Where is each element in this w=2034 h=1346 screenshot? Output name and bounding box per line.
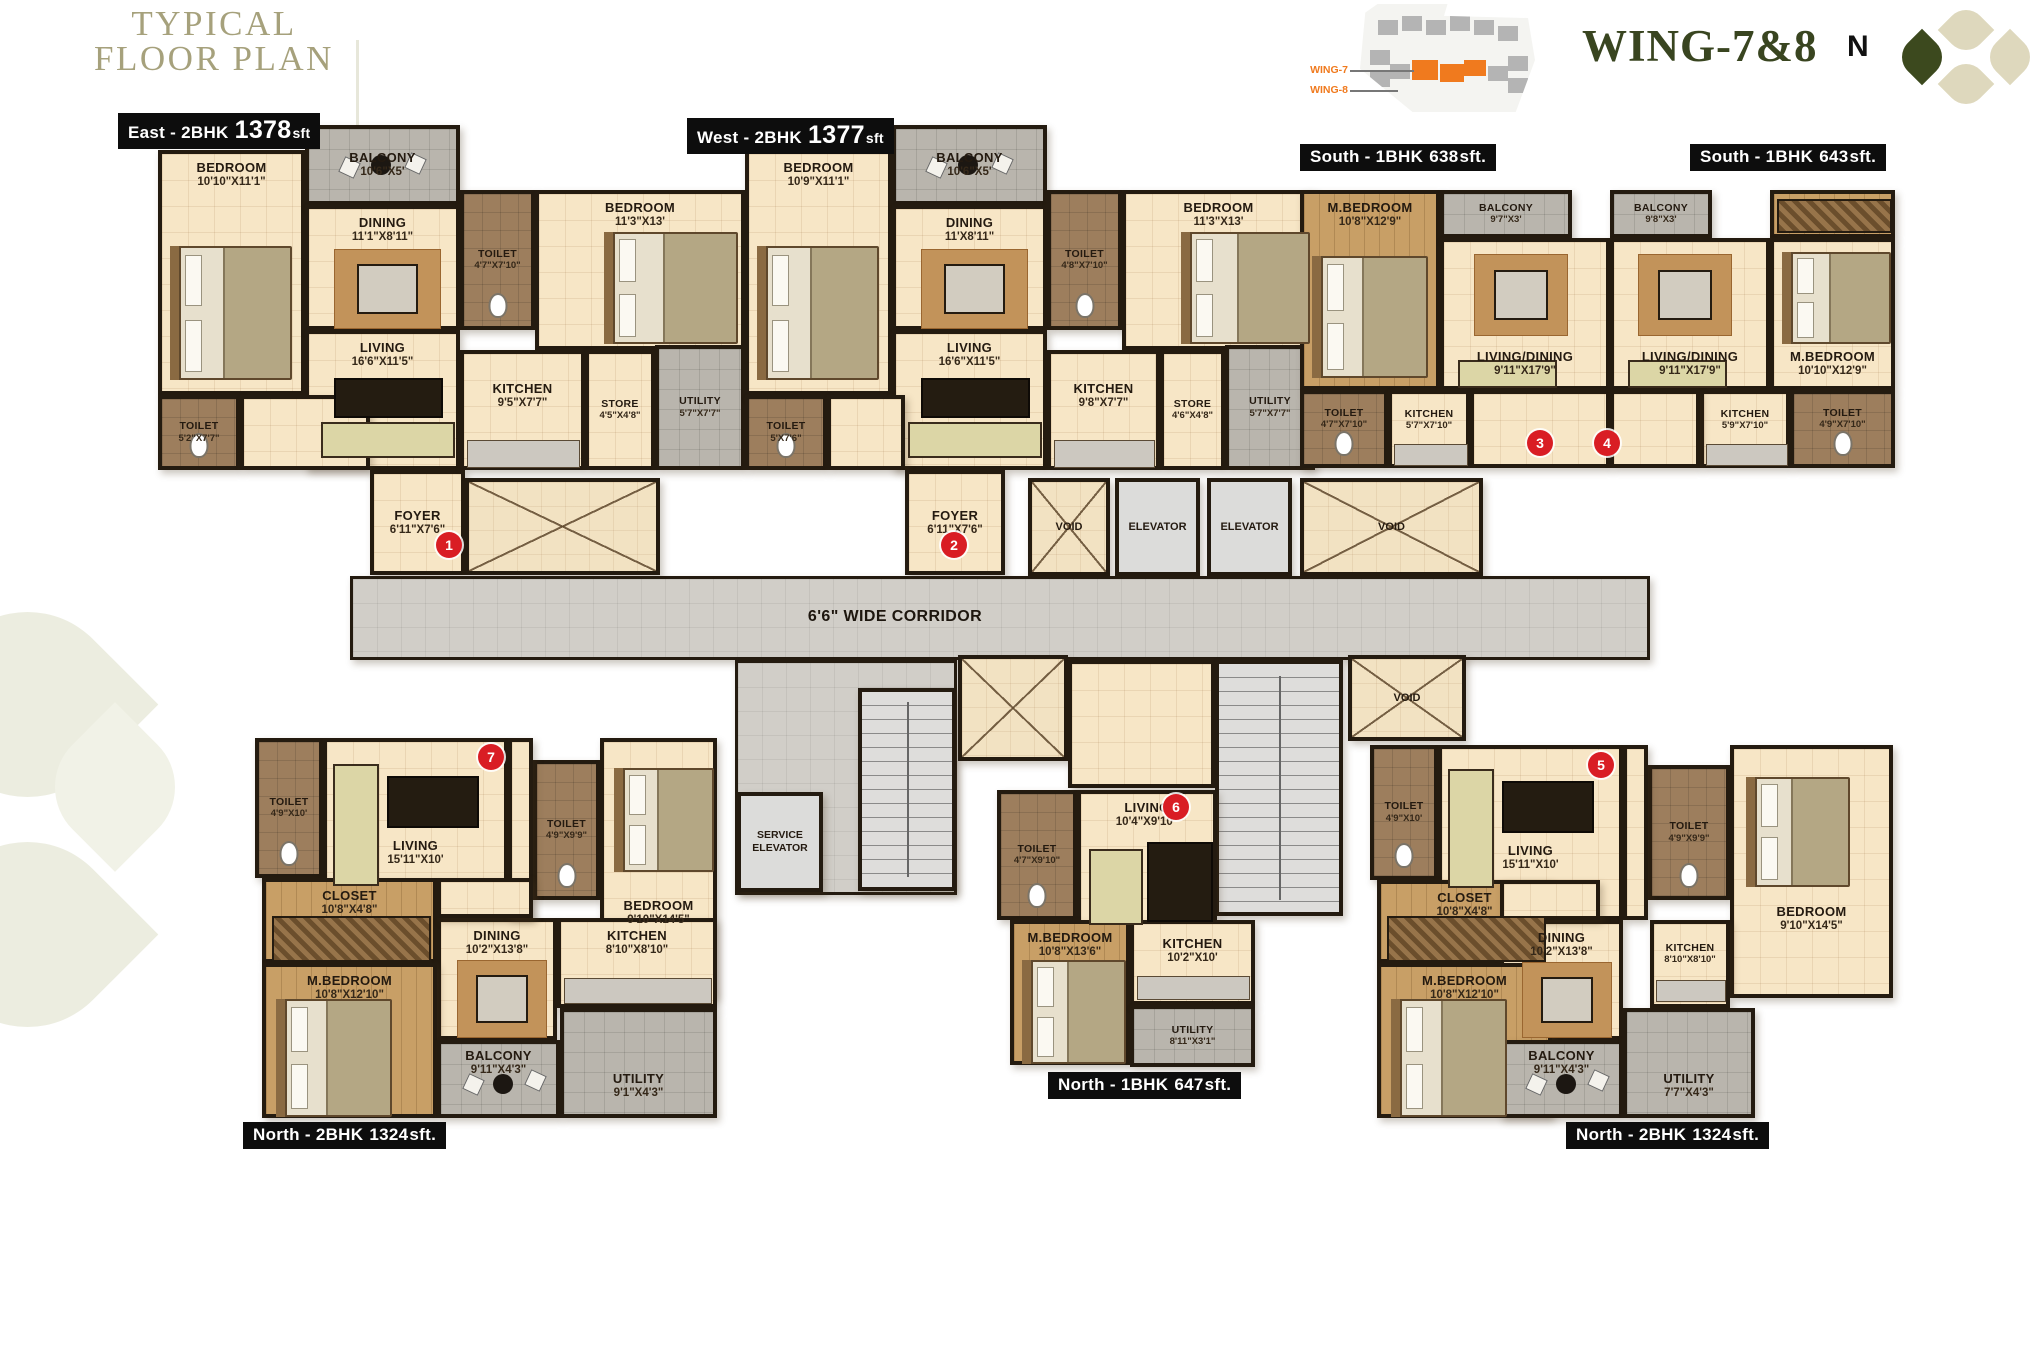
- room-store: STORE4'6"X4'8": [1160, 350, 1225, 470]
- room-utility: UTILITY9'1"X4'3": [560, 1008, 717, 1118]
- toilet-icon: [280, 841, 299, 866]
- room-toilet: TOILET5'2"X7'7": [158, 395, 240, 470]
- tv-unit: [921, 378, 1030, 418]
- unit-badge-east: East - 2BHK 1378sft: [118, 113, 320, 149]
- sofa: [1458, 360, 1557, 388]
- toilet-icon: [488, 293, 507, 318]
- room-kitchen: KITCHEN9'8"X7'7": [1047, 350, 1160, 470]
- room-utility: UTILITY8'11"X3'1": [1130, 1005, 1255, 1067]
- sofa: [1448, 769, 1494, 888]
- sofa: [333, 764, 379, 886]
- room-passage: [1623, 745, 1648, 920]
- wardrobe-icon: [272, 916, 431, 962]
- sofa: [908, 422, 1042, 458]
- bed: [1391, 999, 1507, 1117]
- unit-badge-north-right: North - 2BHK 1324sft.: [1566, 1122, 1769, 1149]
- room-kitchen: KITCHEN8'10"X8'10": [557, 918, 717, 1008]
- room-kitchen: KITCHEN9'5"X7'7": [460, 350, 585, 470]
- key-plan: [1360, 4, 1535, 112]
- room-utility: UTILITY7'7"X4'3": [1623, 1008, 1755, 1118]
- shaft-void: VOID: [1348, 655, 1466, 741]
- wing-title: WING-7&8: [1582, 20, 1817, 72]
- staircase: [858, 688, 956, 891]
- unit-badge-south638: South - 1BHK 638sft.: [1300, 144, 1496, 171]
- kitchen-counter: [1394, 444, 1468, 466]
- tv-unit: [387, 776, 479, 828]
- room-dining: DINING11'X8'11": [892, 205, 1047, 330]
- entry-marker-5: 5: [1588, 752, 1614, 778]
- room-toilet: TOILET4'7"X9'10": [997, 790, 1077, 920]
- keyplan-leader-line: [1350, 90, 1398, 92]
- floor-plan-canvas: TYPICAL FLOOR PLAN WING-7&8 N WING-7 WIN…: [0, 0, 2034, 1346]
- entry-marker-7: 7: [478, 744, 504, 770]
- room-toilet: TOILET4'9"X7'10": [1790, 390, 1895, 468]
- room-toilet: TOILET4'9"X9'9": [533, 760, 600, 900]
- room-balcony: BALCONY9'8"X3': [1610, 190, 1712, 238]
- room-toilet: TOILET5'X7'6": [745, 395, 827, 470]
- dining-table: [1638, 254, 1732, 336]
- wardrobe-icon: [1387, 916, 1546, 962]
- compass-petal-icon: [1894, 29, 1951, 86]
- room-bedroom: BEDROOM11'3"X13': [1122, 190, 1315, 350]
- room-balcony: BALCONY10'6"X5': [305, 125, 460, 205]
- shaft-void: VOID: [1300, 478, 1483, 576]
- page-title: TYPICAL FLOOR PLAN: [92, 6, 336, 76]
- room-kitchen: KITCHEN5'9"X7'10": [1700, 390, 1790, 468]
- dining-table: [1522, 962, 1612, 1038]
- toilet-icon: [1395, 843, 1414, 868]
- keyplan-highlight: [1464, 60, 1486, 76]
- toilet-icon: [190, 433, 209, 458]
- room-utility: UTILITY5'7"X7'7": [655, 345, 745, 470]
- room-master-bedroom: M.BEDROOM10'8"X13'6": [1010, 920, 1130, 1065]
- entry-marker-1: 1: [436, 532, 462, 558]
- room-balcony: BALCONY9'11"X4'3": [1500, 1040, 1623, 1118]
- staircase: [1215, 660, 1343, 916]
- balcony-table: [958, 155, 978, 175]
- entry-marker-6: 6: [1163, 794, 1189, 820]
- room-passage: [1500, 880, 1600, 920]
- tv-unit: [1147, 842, 1213, 922]
- room-dining: DINING11'1"X8'11": [305, 205, 460, 330]
- room-balcony: BALCONY9'11"X4'3": [437, 1040, 560, 1118]
- elevator: ELEVATOR: [1115, 478, 1200, 576]
- room-entry-hall: [1470, 390, 1610, 468]
- room-foyer: FOYER6'11"X7'6": [905, 470, 1005, 575]
- balcony-table: [493, 1074, 513, 1094]
- room-master-bedroom: M.BEDROOM10'8"X12'10": [262, 963, 437, 1118]
- shaft-void: [958, 655, 1068, 761]
- room-master-bedroom: M.BEDROOM10'10"X12'9": [1770, 238, 1895, 390]
- service-elevator: SERVICE ELEVATOR: [737, 792, 823, 892]
- toilet-icon: [1680, 863, 1699, 888]
- bed: [1181, 232, 1310, 344]
- room-kitchen: KITCHEN8'10"X8'10": [1650, 920, 1730, 1008]
- bed: [1746, 777, 1850, 887]
- bed: [604, 232, 738, 344]
- sofa: [321, 422, 455, 458]
- north-label: N: [1847, 30, 1869, 64]
- balcony-table: [371, 155, 391, 175]
- kitchen-counter: [467, 440, 580, 468]
- room-foyer: FOYER6'11"X7'6": [370, 470, 465, 575]
- toilet-icon: [1833, 431, 1852, 456]
- room-passage: [827, 395, 905, 470]
- kitchen-counter: [564, 978, 712, 1004]
- room-passage: [437, 878, 533, 918]
- bed: [614, 768, 714, 872]
- room-toilet: TOILET4'9"X9'9": [1648, 765, 1730, 900]
- toilet-icon: [1028, 883, 1047, 908]
- entry-marker-3: 3: [1527, 430, 1553, 456]
- room-toilet: TOILET4'7"X7'10": [1300, 390, 1388, 468]
- room-entry-hall: [1610, 390, 1700, 468]
- room-wardrobe: [1770, 190, 1895, 238]
- unit-badge-west: West - 2BHK 1377sft: [687, 118, 894, 154]
- shaft-void: [465, 478, 660, 575]
- sofa: [1089, 849, 1143, 925]
- compass-petal-icon: [1938, 56, 1995, 113]
- unit-badge-north-left: North - 2BHK 1324sft.: [243, 1122, 446, 1149]
- kitchen-counter: [1054, 440, 1155, 468]
- keyplan-label-wing7: WING-7: [1302, 64, 1348, 76]
- dining-table: [921, 249, 1028, 329]
- compass-petal-icon: [1982, 29, 2034, 86]
- room-toilet: TOILET4'9"X10': [255, 738, 323, 878]
- entry-marker-2: 2: [941, 532, 967, 558]
- bed: [170, 246, 292, 380]
- dining-table: [457, 960, 547, 1038]
- corridor-label: 6'6" WIDE CORRIDOR: [765, 608, 1025, 626]
- room-balcony: BALCONY9'7"X3': [1440, 190, 1572, 238]
- compass-petal-icon: [1938, 2, 1995, 59]
- room-kitchen: KITCHEN10'2"X10': [1130, 920, 1255, 1005]
- room-bedroom: BEDROOM10'9"X11'1": [745, 150, 892, 395]
- unit-badge-south643: South - 1BHK 643sft.: [1690, 144, 1886, 171]
- room-toilet: TOILET4'8"X7'10": [1047, 190, 1122, 330]
- room-toilet: TOILET4'7"X7'10": [460, 190, 535, 330]
- room-bedroom: BEDROOM9'10"X14'5": [1730, 745, 1893, 998]
- lobby-hall: [1068, 660, 1215, 788]
- bed: [1312, 256, 1428, 378]
- wardrobe-icon: [1777, 199, 1892, 233]
- entry-marker-4: 4: [1594, 430, 1620, 456]
- shaft-void: VOID: [1028, 478, 1110, 576]
- dining-table: [334, 249, 441, 329]
- toilet-icon: [777, 433, 796, 458]
- room-dining: DINING10'2"X13'8": [437, 918, 557, 1040]
- bed: [276, 999, 392, 1117]
- room-living-dining: LIVING/DINING9'11"X17'9": [1610, 238, 1770, 390]
- room-living: LIVING10'4"X9'10": [1077, 790, 1217, 930]
- room-living: LIVING16'6"X11'5": [892, 330, 1047, 470]
- elevator: ELEVATOR: [1207, 478, 1292, 576]
- dining-table: [1474, 254, 1568, 336]
- room-master-bedroom: M.BEDROOM10'8"X12'9": [1300, 190, 1440, 390]
- bed: [1782, 252, 1891, 344]
- keyplan-label-wing8: WING-8: [1302, 84, 1348, 96]
- keyplan-leader-line: [1350, 70, 1414, 72]
- room-bedroom: BEDROOM10'10"X11'1": [158, 150, 305, 395]
- room-kitchen: KITCHEN5'7"X7'10": [1388, 390, 1470, 468]
- room-bedroom: BEDROOM11'3"X13': [535, 190, 745, 350]
- unit-badge-north-mid: North - 1BHK 647sft.: [1048, 1072, 1241, 1099]
- room-closet: CLOSET10'8"X4'8": [262, 878, 437, 963]
- sofa: [1628, 360, 1727, 388]
- room-balcony: BALCONY10'6"X5': [892, 125, 1047, 205]
- toilet-icon: [1075, 293, 1094, 318]
- room-store: STORE4'5"X4'8": [585, 350, 655, 470]
- tv-unit: [1502, 781, 1594, 833]
- keyplan-highlight-wing7: [1412, 60, 1438, 80]
- toilet-icon: [1335, 431, 1354, 456]
- kitchen-counter: [1137, 976, 1250, 1000]
- room-living-dining: LIVING/DINING9'11"X17'9": [1440, 238, 1610, 390]
- bed: [1022, 960, 1126, 1064]
- keyplan-highlight-wing8: [1440, 64, 1464, 82]
- tv-unit: [334, 378, 443, 418]
- toilet-icon: [557, 863, 576, 888]
- kitchen-counter: [1706, 444, 1788, 466]
- balcony-table: [1556, 1074, 1576, 1094]
- bed: [757, 246, 879, 380]
- room-toilet: TOILET4'9"X10': [1370, 745, 1438, 880]
- kitchen-counter: [1656, 980, 1726, 1002]
